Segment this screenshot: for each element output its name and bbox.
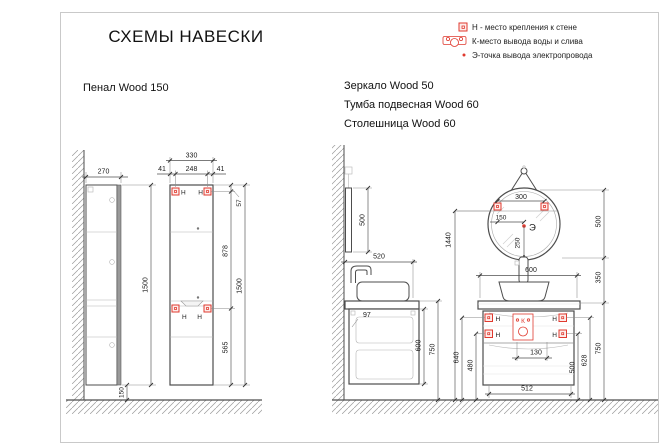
dim-label: 41 bbox=[217, 166, 225, 173]
mirror-marker-left bbox=[494, 203, 501, 210]
penal-drawing: 270 1500 150 bbox=[66, 150, 262, 414]
marker-letter: Н bbox=[181, 190, 186, 197]
dim-tumba-bottom-width: 512 bbox=[485, 386, 575, 399]
dim-penal-side-height: 1500 bbox=[122, 183, 156, 387]
schematic-page: СХЕМЫ НАВЕСКИ Н - место крепления к стен… bbox=[0, 0, 666, 444]
mirror-front-view: 300 150 Э 250 bbox=[457, 166, 560, 260]
tumba-mirror-drawing: 500 97 520 bbox=[332, 145, 658, 414]
dim-penal-hole-offsets: 41 248 41 bbox=[157, 166, 226, 187]
tumba-marker-lower-right bbox=[559, 330, 567, 338]
dim-label: 512 bbox=[521, 386, 533, 393]
marker-letter: Н bbox=[197, 314, 202, 321]
water-outlet-marker: К bbox=[513, 314, 533, 340]
dim-label: 600 bbox=[416, 340, 423, 352]
dim-label: 480 bbox=[468, 360, 475, 372]
dim-label: 500 bbox=[570, 362, 577, 374]
mirror-side-view bbox=[345, 167, 352, 252]
marker-letter: Н bbox=[496, 316, 501, 323]
dim-label: 57 bbox=[236, 199, 243, 207]
dim-label: 1500 bbox=[237, 278, 244, 294]
dim-label: 1440 bbox=[446, 232, 453, 248]
dim-label: 750 bbox=[596, 343, 603, 355]
tumba-side-view: 97 bbox=[345, 266, 419, 384]
marker-letter: Н bbox=[552, 316, 557, 323]
dim-label: 250 bbox=[515, 237, 522, 248]
floor-hatch-right bbox=[332, 400, 658, 414]
penal-front-view: Н Н Н Н bbox=[170, 185, 213, 385]
dim-label: 520 bbox=[373, 254, 385, 261]
marker-letter: Э bbox=[529, 223, 536, 234]
dim-label: 97 bbox=[363, 312, 371, 319]
dim-floor-to-upper-holes: 640 bbox=[454, 316, 485, 402]
dim-penal-depth: 270 bbox=[82, 169, 128, 184]
floor-hatch-left bbox=[66, 400, 262, 414]
marker-letter: Н bbox=[182, 314, 187, 321]
penal-side-view bbox=[86, 185, 121, 385]
dim-label: 628 bbox=[582, 355, 589, 367]
marker-letter: Н bbox=[496, 332, 501, 339]
dim-label: 330 bbox=[186, 153, 198, 160]
dim-label: 150 bbox=[119, 387, 126, 398]
dim-label: 270 bbox=[98, 169, 110, 176]
dim-label: 878 bbox=[223, 245, 230, 257]
dim-label: 600 bbox=[525, 267, 537, 274]
mirror-marker-right bbox=[541, 203, 548, 210]
drawing-canvas: 270 1500 150 bbox=[0, 0, 666, 444]
dim-label: 130 bbox=[530, 350, 542, 357]
dim-penal-hole-to-bottom: 565 bbox=[213, 309, 250, 388]
marker-letter: Н bbox=[552, 332, 557, 339]
dim-penal-top-to-hole: 57 bbox=[211, 183, 250, 207]
mount-marker-bottom-right bbox=[204, 305, 211, 312]
wall-hatch-right bbox=[332, 145, 344, 400]
marker-letter: Н bbox=[198, 190, 203, 197]
tumba-marker-lower-left bbox=[485, 330, 493, 338]
tumba-marker-upper-right bbox=[559, 314, 567, 322]
dim-penal-hole-to-hole: 878 bbox=[211, 192, 235, 311]
dim-label: 300 bbox=[515, 194, 527, 201]
dim-label: 500 bbox=[596, 216, 603, 228]
dim-label: 640 bbox=[454, 352, 461, 364]
mount-marker-bottom-left bbox=[172, 305, 179, 312]
marker-letter: К bbox=[521, 318, 525, 325]
mount-marker-top-left bbox=[172, 188, 179, 195]
dim-penal-floor-gap: 150 bbox=[119, 383, 130, 402]
dim-floor-to-lower-holes: 480 bbox=[468, 332, 485, 402]
dim-label: 565 bbox=[223, 342, 230, 354]
dim-label: 500 bbox=[360, 214, 367, 226]
dim-label: 150 bbox=[496, 215, 507, 222]
dim-label: 41 bbox=[158, 166, 166, 173]
dim-label: 248 bbox=[186, 166, 198, 173]
dim-label: 350 bbox=[596, 272, 603, 284]
tumba-marker-upper-left bbox=[485, 314, 493, 322]
dim-label: 1500 bbox=[143, 277, 150, 293]
dim-floor-to-upper-holes-right: 628 bbox=[582, 316, 593, 402]
dim-penal-front-height: 1500 bbox=[237, 183, 248, 387]
dim-label: 750 bbox=[430, 344, 437, 356]
wall-hatch-left bbox=[72, 150, 84, 400]
dim-mirror-side-height: 500 bbox=[353, 186, 372, 254]
mount-marker-top-right bbox=[204, 188, 211, 195]
